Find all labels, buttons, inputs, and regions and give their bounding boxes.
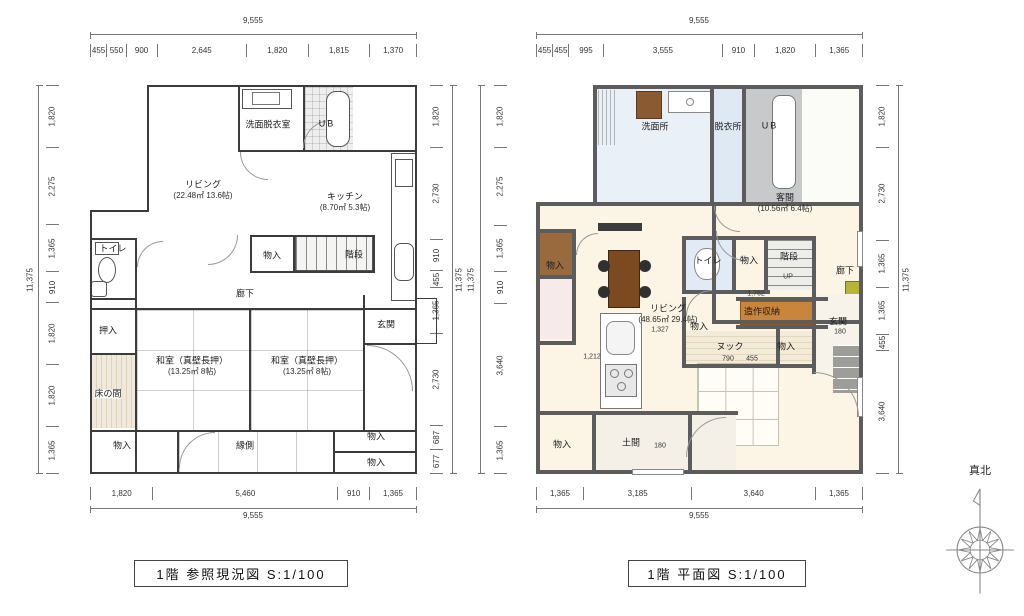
dim-total-east-left-plan: 11,375: [455, 268, 464, 292]
room-label-stairs: 階段: [780, 253, 798, 262]
room-label-closet: 物入: [263, 252, 281, 261]
wall: [682, 236, 686, 294]
dim-total-west-right-plan: 11,375: [467, 268, 476, 292]
room-label-closet-w: 物入: [546, 262, 564, 271]
wall: [363, 295, 365, 345]
dim: 2,645: [157, 44, 246, 57]
wall: [249, 308, 251, 430]
wall: [90, 210, 92, 474]
room-label-doma: 土間: [622, 439, 640, 448]
kitchen-sink: [606, 321, 635, 355]
floor-dressing-room: [714, 89, 742, 202]
dim-line: [898, 85, 899, 474]
dim-line: [38, 85, 39, 474]
room-label-unit-bath: UB: [762, 122, 779, 131]
wall: [536, 202, 597, 206]
room-label-built-in-storage: 造作収納: [744, 308, 780, 317]
dim: 455: [878, 335, 887, 348]
wall: [536, 470, 863, 474]
wall: [147, 85, 149, 212]
hand-wash-basin: [91, 281, 107, 297]
dim: 1,365: [878, 301, 887, 321]
dim: 900: [126, 44, 157, 57]
chair: [598, 286, 610, 298]
door-arc: [240, 152, 268, 180]
stove: [605, 364, 637, 397]
dim: 455: [432, 272, 441, 285]
wall: [373, 235, 375, 273]
stairs-up-label: UP: [783, 274, 793, 281]
room-label-washitsu-1: 和室（真壁長押）: [156, 357, 228, 366]
dim: 3,555: [603, 44, 723, 57]
burner: [624, 369, 633, 378]
window: [857, 231, 863, 267]
dim: 1,820: [48, 386, 57, 406]
room-label-washroom: 洗面所: [641, 123, 668, 132]
door-arc: [137, 241, 163, 267]
dim: 455: [552, 44, 568, 57]
dim-total-west-left-plan: 11,375: [26, 268, 35, 292]
dim: 455: [536, 44, 552, 57]
dim: 2,730: [432, 183, 441, 203]
interior-dim: 1,762: [747, 291, 765, 298]
dim: 2,275: [48, 176, 57, 196]
room-area-living: (22.48㎡ 13.6帖): [173, 192, 232, 200]
dim-chain-east-right-plan: 1,820 2,730 1,365 1,365 455 3,640: [876, 85, 889, 474]
room-label-corridor: 廊下: [836, 267, 854, 276]
laundry-cabinet: [636, 91, 662, 119]
room-label-toilet: トイレ: [694, 257, 721, 266]
closet-floor: [538, 279, 572, 339]
porch-line: [417, 343, 437, 344]
caption-left-plan: 1階 参照現況図 S:1/100: [134, 560, 348, 587]
room-label-guest-room: 客間: [776, 194, 794, 203]
dim: 1,365: [878, 254, 887, 274]
dim: 2,275: [496, 176, 505, 196]
wall: [135, 238, 137, 474]
wall: [536, 229, 576, 233]
dim: 1,820: [496, 107, 505, 127]
dim-line: [536, 34, 863, 35]
shutter-panel: [598, 90, 616, 145]
interior-dim: 1,327: [651, 327, 669, 334]
wall: [812, 236, 816, 294]
room-area-washitsu-1: (13.25㎡ 8帖): [168, 368, 216, 376]
room-label-closet-c: 物入: [690, 323, 708, 332]
dim-line: [536, 508, 863, 509]
floor-plan-left: 洗面脱衣室 UB リビング (22.48㎡ 13.6帖) キッチン (8.70㎡…: [90, 85, 417, 474]
room-label-closet-e1: 物入: [367, 433, 385, 442]
wall: [250, 235, 375, 237]
stairs: [768, 240, 812, 290]
wall: [536, 202, 540, 474]
room-label-tokonoma: 床の間: [94, 390, 121, 399]
burner: [610, 369, 619, 378]
wall: [682, 236, 816, 240]
dim: 910: [432, 249, 441, 262]
vanity-sink: [252, 92, 280, 105]
wall: [710, 85, 714, 206]
dim-total-east-right-plan: 11,375: [902, 268, 911, 292]
dim-line: [90, 34, 417, 35]
north-arrow-icon: [938, 478, 1022, 598]
chair: [598, 260, 610, 272]
dim-line: [480, 85, 481, 474]
room-label-closet-sw: 物入: [113, 442, 131, 451]
wall: [147, 85, 417, 87]
dim: 1,365: [48, 238, 57, 258]
dining-table: [608, 250, 640, 308]
chair: [639, 286, 651, 298]
dim-line: [90, 508, 417, 509]
wall: [250, 271, 375, 273]
floor-plan-right: 洗面所 脱衣所 UB 客間 (10.56㎡ 6.4帖) 物入 トイレ 物入 階段…: [536, 85, 863, 474]
dim: 1,365: [48, 440, 57, 460]
dim: 1,820: [878, 107, 887, 127]
room-label-veranda: 縁側: [236, 442, 254, 451]
wall: [742, 85, 746, 206]
dim: 910: [337, 487, 369, 500]
room-label-unit-bath: UB: [319, 120, 336, 129]
dim-chain-top-left-plan: 455 550 900 2,645 1,820 1,815 1,370: [90, 44, 417, 57]
caption-right-plan: 1階 平面図 S:1/100: [628, 560, 806, 587]
porch-line: [417, 298, 437, 299]
dim: 1,820: [754, 44, 816, 57]
room-label-toilet: トイレ: [99, 245, 126, 254]
room-label-oshiire: 押入: [99, 327, 117, 336]
wall: [536, 275, 576, 279]
dim: 1,820: [432, 106, 441, 126]
dim-chain-top-right-plan: 455 455 995 3,555 910 1,820 1,365: [536, 44, 863, 57]
dim-chain-west-right-plan: 1,820 2,275 1,365 910 3,640 1,365: [494, 85, 507, 474]
interior-dim: 1,212: [583, 354, 601, 361]
dim: 910: [496, 281, 505, 294]
dim: 1,365: [815, 44, 863, 57]
window: [632, 469, 684, 475]
room-label-entrance: 玄関: [377, 321, 395, 330]
compass: 真北: [938, 462, 1022, 606]
interior-dim: 180: [654, 443, 666, 450]
room-label-closet-e2: 物入: [367, 459, 385, 468]
room-label-stairs: 階段: [345, 251, 363, 260]
wall: [764, 236, 768, 294]
dim: 3,640: [496, 355, 505, 375]
wall: [536, 411, 596, 415]
dim-chain-bottom-right-plan: 1,365 3,185 3,640 1,365: [536, 487, 863, 500]
drawing-canvas: 9,555 455 550 900 2,645 1,820 1,815 1,37…: [0, 0, 1024, 616]
wall: [293, 235, 295, 273]
room-label-closet-n: 物入: [777, 343, 795, 352]
dim: 687: [432, 431, 441, 444]
burner: [617, 382, 626, 391]
bathtub: [772, 95, 796, 189]
dim: 1,815: [308, 44, 370, 57]
room-label-washroom: 洗面脱衣室: [245, 121, 290, 130]
wall: [90, 298, 137, 300]
wall: [90, 308, 417, 310]
chair: [639, 260, 651, 272]
dim-total-top-left-plan: 9,555: [243, 16, 263, 25]
wall: [90, 210, 149, 212]
room-label-dressing-room: 脱衣所: [714, 123, 741, 132]
room-area-guest-room: (10.56㎡ 6.4帖): [758, 205, 813, 213]
door-arc: [367, 345, 413, 391]
kitchen-sink: [394, 243, 414, 281]
vanity-sink: [686, 98, 694, 106]
dim-line: [452, 85, 453, 474]
wall: [536, 341, 576, 345]
compass-label: 真北: [938, 462, 1022, 478]
wall: [90, 238, 137, 240]
wall: [593, 85, 859, 89]
interior-dim: 790: [722, 356, 734, 363]
room-area-kitchen: (8.70㎡ 5.3帖): [320, 204, 370, 212]
wall: [90, 353, 136, 355]
wall: [592, 411, 596, 474]
wall: [335, 451, 417, 453]
wall: [415, 85, 417, 474]
dim: 1,365: [369, 487, 417, 500]
dim-total-bottom-right-plan: 9,555: [689, 511, 709, 520]
dim: 1,820: [246, 44, 308, 57]
dim-total-bottom-left-plan: 9,555: [243, 511, 263, 520]
dim: 3,185: [583, 487, 691, 500]
dim: 1,365: [496, 238, 505, 258]
dim: 1,820: [90, 487, 152, 500]
wall: [238, 85, 240, 152]
wall: [90, 472, 417, 474]
door-arc: [208, 235, 238, 265]
room-label-kitchen: キッチン: [327, 193, 363, 202]
dim: 995: [568, 44, 602, 57]
toilet-bowl: [98, 257, 116, 283]
dim: 1,365: [815, 487, 863, 500]
room-label-living: リビング: [650, 305, 686, 314]
room-area-washitsu-2: (13.25㎡ 8帖): [283, 368, 331, 376]
dim: 677: [432, 455, 441, 468]
dim-chain-east-left-plan: 1,820 2,730 910 455 1,365 2,730 687 677: [430, 85, 443, 474]
wall: [682, 364, 812, 368]
dim: 2,730: [878, 184, 887, 204]
dim: 1,365: [496, 440, 505, 460]
dim-chain-bottom-left-plan: 1,820 5,460 910 1,365: [90, 487, 417, 500]
wall: [593, 85, 597, 206]
dim-total-top-right-plan: 9,555: [689, 16, 709, 25]
dim: 3,640: [691, 487, 815, 500]
dim: 1,370: [369, 44, 417, 57]
dim: 5,460: [152, 487, 337, 500]
dim: 3,640: [878, 402, 887, 422]
room-label-entrance: 玄関: [829, 318, 847, 327]
dim: 910: [722, 44, 753, 57]
room-label-living: リビング: [185, 181, 221, 190]
room-area-living: (48.65㎡ 29.4帖): [638, 316, 697, 324]
dim: 1,365: [536, 487, 583, 500]
wall: [812, 290, 816, 374]
wall: [592, 411, 738, 415]
dim: 1,820: [48, 324, 57, 344]
room-label-closet-mid: 物入: [740, 257, 758, 266]
dim: 910: [48, 280, 57, 293]
dim: 455: [90, 44, 106, 57]
porch-line: [436, 298, 437, 344]
dim: 2,730: [432, 370, 441, 390]
room-label-closet-s: 物入: [553, 441, 571, 450]
room-label-nook: ヌック: [716, 343, 743, 352]
stove: [395, 159, 413, 187]
dim-chain-west-left-plan: 1,820 2,275 1,365 910 1,820 1,820 1,365: [46, 85, 59, 474]
wall: [250, 235, 252, 273]
interior-dim: 180: [834, 329, 846, 336]
wall: [572, 229, 576, 345]
tv-board: [598, 223, 642, 231]
room-label-washitsu-2: 和室（真壁長押）: [271, 357, 343, 366]
interior-dim: 455: [746, 356, 758, 363]
dim: 1,820: [48, 106, 57, 126]
room-label-corridor: 廊下: [236, 290, 254, 299]
dim: 550: [106, 44, 125, 57]
